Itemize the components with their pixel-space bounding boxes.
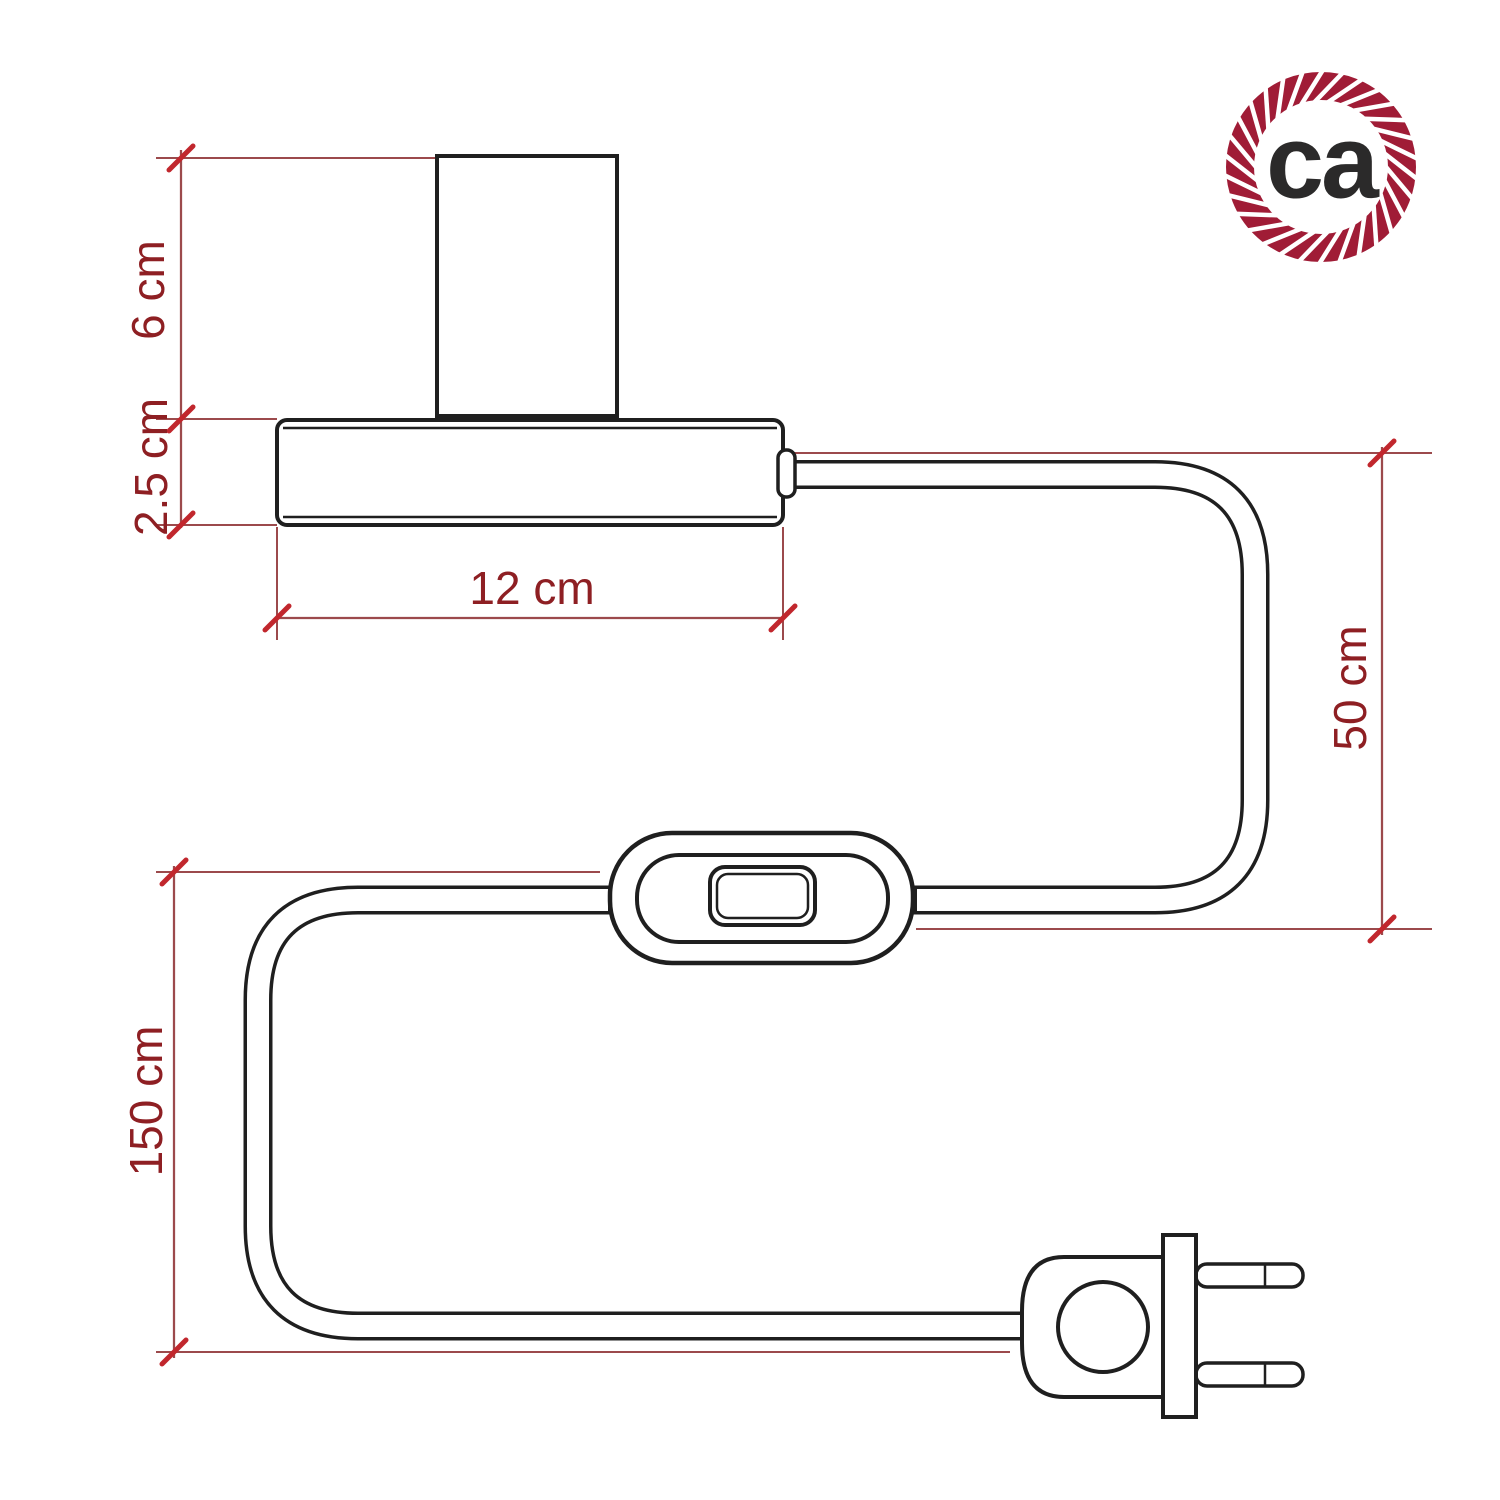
plug-prong-bottom [1196, 1363, 1303, 1386]
dimension-label-socket-height: 6 cm [125, 240, 171, 340]
dimension-label-lamp-to-switch-cable: 50 cm [1327, 625, 1373, 750]
technical-drawing [0, 0, 1500, 1500]
dimension-label-base-height: 2.5 cm [128, 398, 174, 536]
plug-screw-circle [1058, 1282, 1148, 1372]
dimension-label-total-cable-length: 150 cm [123, 1026, 169, 1177]
lamp-base [277, 420, 783, 525]
plug-prong-top [1196, 1264, 1303, 1287]
lamp-socket [437, 156, 617, 416]
dimension-label-base-width: 12 cm [469, 565, 594, 611]
switch-button-inner [717, 874, 808, 918]
dimension-lines [174, 150, 1382, 1358]
power-plug [1022, 1235, 1303, 1417]
plug-faceplate [1163, 1235, 1196, 1417]
dimension-ticks [162, 146, 1394, 1364]
brand-logo-text: ca [1266, 104, 1376, 223]
inline-switch [610, 833, 913, 963]
dimension-diagram: 6 cm 2.5 cm 12 cm 50 cm 150 cm ca [0, 0, 1500, 1500]
lamp [277, 156, 795, 525]
cable-gland [778, 450, 795, 497]
